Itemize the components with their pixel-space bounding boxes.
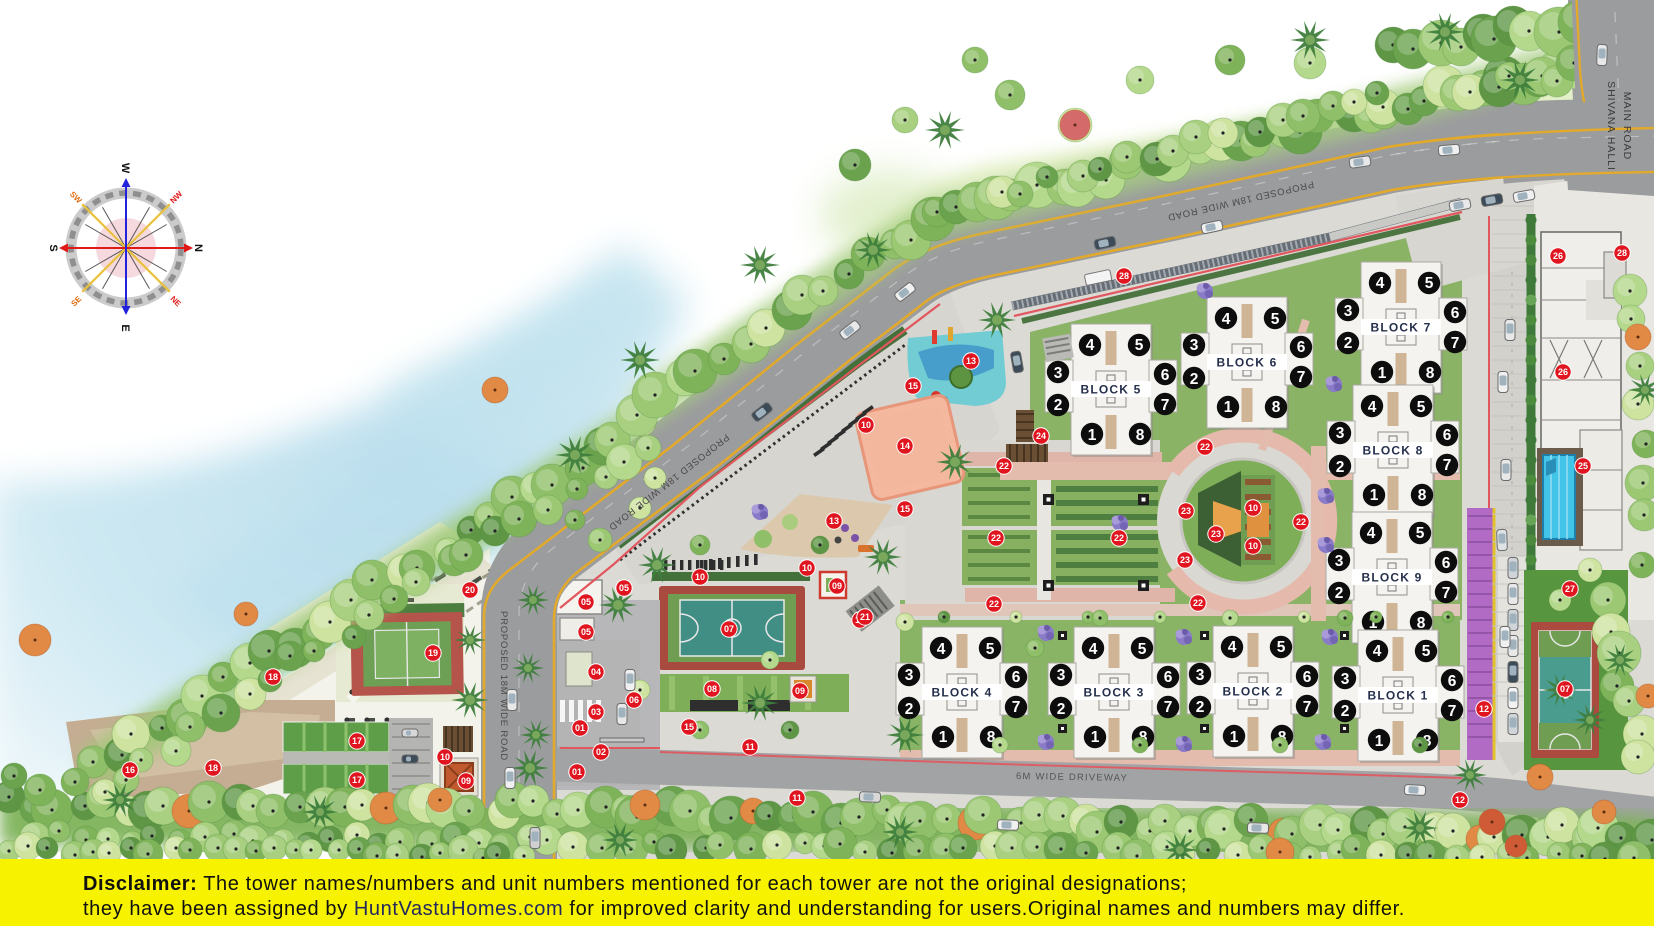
svg-text:MAIN ROAD: MAIN ROAD bbox=[1621, 92, 1633, 161]
svg-text:2: 2 bbox=[1341, 703, 1350, 720]
svg-text:10: 10 bbox=[695, 572, 705, 582]
svg-text:07: 07 bbox=[1560, 684, 1570, 694]
svg-text:6: 6 bbox=[1448, 673, 1457, 690]
svg-text:4: 4 bbox=[937, 641, 946, 658]
svg-text:01: 01 bbox=[572, 767, 582, 777]
svg-text:21: 21 bbox=[860, 612, 870, 622]
svg-text:4: 4 bbox=[1222, 311, 1231, 328]
svg-text:4: 4 bbox=[1367, 525, 1376, 542]
svg-text:3: 3 bbox=[1336, 425, 1345, 442]
svg-text:13: 13 bbox=[829, 516, 839, 526]
svg-text:11: 11 bbox=[792, 793, 802, 803]
svg-text:22: 22 bbox=[1200, 442, 1210, 452]
svg-text:3: 3 bbox=[1335, 553, 1344, 570]
svg-text:10: 10 bbox=[861, 420, 871, 430]
svg-text:15: 15 bbox=[684, 722, 694, 732]
svg-text:22: 22 bbox=[1114, 533, 1124, 543]
svg-text:23: 23 bbox=[1211, 529, 1221, 539]
svg-text:25: 25 bbox=[1578, 461, 1588, 471]
svg-text:18: 18 bbox=[268, 672, 278, 682]
svg-text:2: 2 bbox=[905, 701, 914, 718]
svg-text:10: 10 bbox=[802, 563, 812, 573]
svg-text:3: 3 bbox=[1344, 303, 1353, 320]
svg-text:28: 28 bbox=[1119, 271, 1129, 281]
svg-text:BLOCK 5: BLOCK 5 bbox=[1080, 383, 1141, 397]
svg-text:6M WIDE DRIVEWAY: 6M WIDE DRIVEWAY bbox=[1016, 771, 1128, 784]
svg-text:5: 5 bbox=[1135, 337, 1144, 354]
svg-text:BLOCK 2: BLOCK 2 bbox=[1222, 685, 1283, 699]
svg-text:09: 09 bbox=[795, 686, 805, 696]
svg-text:15: 15 bbox=[908, 381, 918, 391]
svg-text:4: 4 bbox=[1228, 639, 1237, 656]
svg-text:03: 03 bbox=[591, 707, 601, 717]
svg-text:2: 2 bbox=[1336, 459, 1345, 476]
svg-text:7: 7 bbox=[1451, 335, 1460, 352]
svg-text:5: 5 bbox=[986, 641, 995, 658]
svg-text:18: 18 bbox=[208, 763, 218, 773]
svg-text:2: 2 bbox=[1196, 699, 1205, 716]
svg-text:5: 5 bbox=[1417, 399, 1426, 416]
svg-text:PROPOSED 18M WIDE ROAD: PROPOSED 18M WIDE ROAD bbox=[498, 611, 509, 761]
svg-text:22: 22 bbox=[989, 599, 999, 609]
svg-text:3: 3 bbox=[1054, 365, 1063, 382]
svg-text:1: 1 bbox=[1224, 399, 1233, 416]
svg-text:05: 05 bbox=[619, 583, 629, 593]
svg-text:W: W bbox=[119, 163, 131, 174]
svg-text:SHIVANA HALLI: SHIVANA HALLI bbox=[1605, 81, 1617, 171]
svg-text:3: 3 bbox=[1196, 667, 1205, 684]
svg-text:15: 15 bbox=[900, 504, 910, 514]
svg-text:2: 2 bbox=[1057, 701, 1066, 718]
svg-text:05: 05 bbox=[581, 627, 591, 637]
svg-text:12: 12 bbox=[1479, 704, 1489, 714]
svg-text:22: 22 bbox=[991, 533, 1001, 543]
svg-text:10: 10 bbox=[1248, 541, 1258, 551]
svg-text:7: 7 bbox=[1161, 397, 1170, 414]
svg-text:4: 4 bbox=[1373, 643, 1382, 660]
svg-text:1: 1 bbox=[1378, 365, 1387, 382]
svg-text:6: 6 bbox=[1161, 367, 1170, 384]
svg-text:02: 02 bbox=[596, 747, 606, 757]
svg-text:13: 13 bbox=[966, 356, 976, 366]
svg-text:07: 07 bbox=[724, 624, 734, 634]
svg-text:22: 22 bbox=[1296, 517, 1306, 527]
svg-text:05: 05 bbox=[581, 597, 591, 607]
svg-text:7: 7 bbox=[1303, 699, 1312, 716]
svg-text:7: 7 bbox=[1442, 585, 1451, 602]
svg-text:BLOCK 4: BLOCK 4 bbox=[931, 686, 992, 700]
svg-text:7: 7 bbox=[1164, 699, 1173, 716]
svg-text:6: 6 bbox=[1012, 669, 1021, 686]
svg-text:17: 17 bbox=[352, 775, 362, 785]
svg-text:22: 22 bbox=[999, 461, 1009, 471]
svg-text:1: 1 bbox=[1375, 733, 1384, 750]
svg-text:6: 6 bbox=[1443, 427, 1452, 444]
svg-text:5: 5 bbox=[1277, 639, 1286, 656]
svg-text:1: 1 bbox=[1088, 427, 1097, 444]
svg-text:1: 1 bbox=[939, 729, 948, 746]
svg-text:BLOCK 1: BLOCK 1 bbox=[1367, 689, 1428, 703]
svg-text:7: 7 bbox=[1443, 457, 1452, 474]
svg-text:3: 3 bbox=[1341, 671, 1350, 688]
svg-text:N: N bbox=[192, 244, 204, 252]
svg-text:09: 09 bbox=[461, 776, 471, 786]
svg-text:2: 2 bbox=[1054, 397, 1063, 414]
svg-text:16: 16 bbox=[125, 765, 135, 775]
svg-text:1: 1 bbox=[1370, 487, 1379, 504]
svg-text:8: 8 bbox=[1136, 427, 1145, 444]
svg-text:10: 10 bbox=[1248, 503, 1258, 513]
svg-text:23: 23 bbox=[1180, 555, 1190, 565]
svg-text:1: 1 bbox=[1091, 729, 1100, 746]
svg-text:2: 2 bbox=[1335, 585, 1344, 602]
svg-text:BLOCK 8: BLOCK 8 bbox=[1362, 444, 1423, 458]
svg-text:2: 2 bbox=[1190, 371, 1199, 388]
svg-text:09: 09 bbox=[832, 581, 842, 591]
svg-text:7: 7 bbox=[1448, 703, 1457, 720]
svg-text:5: 5 bbox=[1425, 275, 1434, 292]
svg-text:10: 10 bbox=[440, 752, 450, 762]
svg-text:24: 24 bbox=[1036, 431, 1046, 441]
svg-text:7: 7 bbox=[1012, 699, 1021, 716]
svg-text:3: 3 bbox=[905, 667, 914, 684]
svg-text:BLOCK 9: BLOCK 9 bbox=[1361, 571, 1422, 585]
svg-text:06: 06 bbox=[629, 695, 639, 705]
svg-text:6: 6 bbox=[1303, 669, 1312, 686]
svg-text:08: 08 bbox=[707, 684, 717, 694]
svg-text:14: 14 bbox=[900, 441, 910, 451]
svg-text:01: 01 bbox=[575, 723, 585, 733]
svg-text:BLOCK 7: BLOCK 7 bbox=[1370, 321, 1431, 335]
svg-text:6: 6 bbox=[1297, 339, 1306, 356]
svg-text:8: 8 bbox=[1272, 399, 1281, 416]
svg-text:04: 04 bbox=[591, 667, 601, 677]
svg-text:8: 8 bbox=[1418, 487, 1427, 504]
svg-text:4: 4 bbox=[1089, 641, 1098, 658]
svg-text:27: 27 bbox=[1565, 584, 1575, 594]
svg-text:8: 8 bbox=[1417, 615, 1426, 632]
svg-text:4: 4 bbox=[1376, 275, 1385, 292]
svg-text:5: 5 bbox=[1271, 311, 1280, 328]
svg-text:19: 19 bbox=[428, 648, 438, 658]
svg-text:1: 1 bbox=[1230, 729, 1239, 746]
svg-text:26: 26 bbox=[1553, 251, 1563, 261]
svg-text:22: 22 bbox=[1193, 598, 1203, 608]
svg-text:23: 23 bbox=[1181, 506, 1191, 516]
svg-text:17: 17 bbox=[352, 736, 362, 746]
svg-text:8: 8 bbox=[1426, 365, 1435, 382]
svg-text:E: E bbox=[119, 324, 131, 331]
svg-text:5: 5 bbox=[1422, 643, 1431, 660]
svg-text:7: 7 bbox=[1297, 369, 1306, 386]
svg-text:26: 26 bbox=[1558, 367, 1568, 377]
svg-text:20: 20 bbox=[465, 585, 475, 595]
svg-text:S: S bbox=[47, 244, 59, 251]
svg-text:5: 5 bbox=[1416, 525, 1425, 542]
svg-text:6: 6 bbox=[1451, 305, 1460, 322]
svg-text:5: 5 bbox=[1138, 641, 1147, 658]
svg-text:6: 6 bbox=[1164, 669, 1173, 686]
svg-text:3: 3 bbox=[1057, 667, 1066, 684]
svg-text:they have been assigned by Hun: they have been assigned by HuntVastuHome… bbox=[83, 898, 1405, 920]
svg-text:11: 11 bbox=[745, 742, 755, 752]
svg-text:BLOCK 6: BLOCK 6 bbox=[1216, 356, 1277, 370]
svg-text:4: 4 bbox=[1368, 399, 1377, 416]
svg-text:4: 4 bbox=[1086, 337, 1095, 354]
svg-text:BLOCK 3: BLOCK 3 bbox=[1083, 686, 1144, 700]
svg-text:3: 3 bbox=[1190, 337, 1199, 354]
svg-text:28: 28 bbox=[1617, 248, 1627, 258]
svg-text:6: 6 bbox=[1442, 555, 1451, 572]
svg-text:2: 2 bbox=[1344, 335, 1353, 352]
svg-text:12: 12 bbox=[1455, 795, 1465, 805]
svg-text:Disclaimer: The tower names/nu: Disclaimer: The tower names/numbers and … bbox=[83, 873, 1187, 895]
